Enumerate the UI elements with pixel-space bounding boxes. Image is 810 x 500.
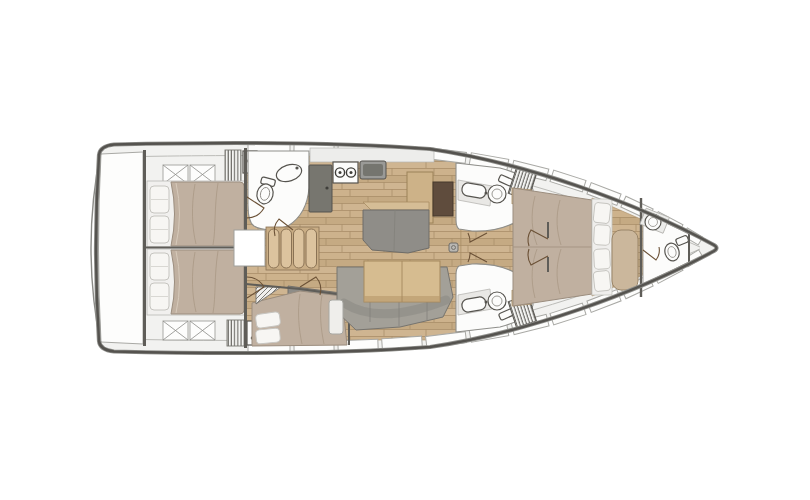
aft-cabin-starboard (147, 249, 245, 315)
stair-landing (234, 230, 265, 266)
aft-cabin-port (147, 181, 245, 247)
nav-panel (433, 182, 453, 216)
bow-bench-seat (612, 230, 638, 290)
headboard-cushion (593, 225, 610, 246)
vent-grille-bottom (227, 320, 245, 346)
headboard-cushion (593, 270, 611, 292)
stove (333, 162, 358, 183)
stair-tread (281, 229, 292, 268)
faucet-dot (295, 166, 298, 169)
vent-grille-top (225, 150, 241, 182)
berth-duvet (171, 182, 244, 246)
mast-post (449, 243, 458, 252)
yacht-deck-plan (0, 0, 810, 500)
stair-tread (294, 229, 305, 268)
fridge-handle (325, 186, 328, 189)
pillow (255, 311, 281, 328)
berth-duvet (171, 250, 244, 314)
pillow (255, 328, 280, 344)
galley-sink-basin (363, 164, 383, 176)
companionway (234, 227, 319, 270)
swim-platform-deck (99, 152, 144, 344)
faucet-dot (485, 192, 488, 195)
locker-x (190, 321, 215, 340)
headboard-cushion (593, 249, 610, 270)
floor-plan-canvas (0, 0, 810, 500)
fridge (309, 165, 332, 212)
burner-center (339, 171, 342, 174)
headboard-cushion (593, 202, 611, 224)
l-bench (363, 210, 429, 253)
bench-back-trim (363, 202, 429, 210)
faucet-dot (485, 301, 488, 304)
galley-counter (310, 148, 434, 162)
stair-tread (306, 229, 317, 268)
sofa-armrest (329, 300, 343, 334)
locker-x (163, 321, 188, 340)
stair-tread (269, 229, 280, 268)
burner-center (350, 171, 353, 174)
